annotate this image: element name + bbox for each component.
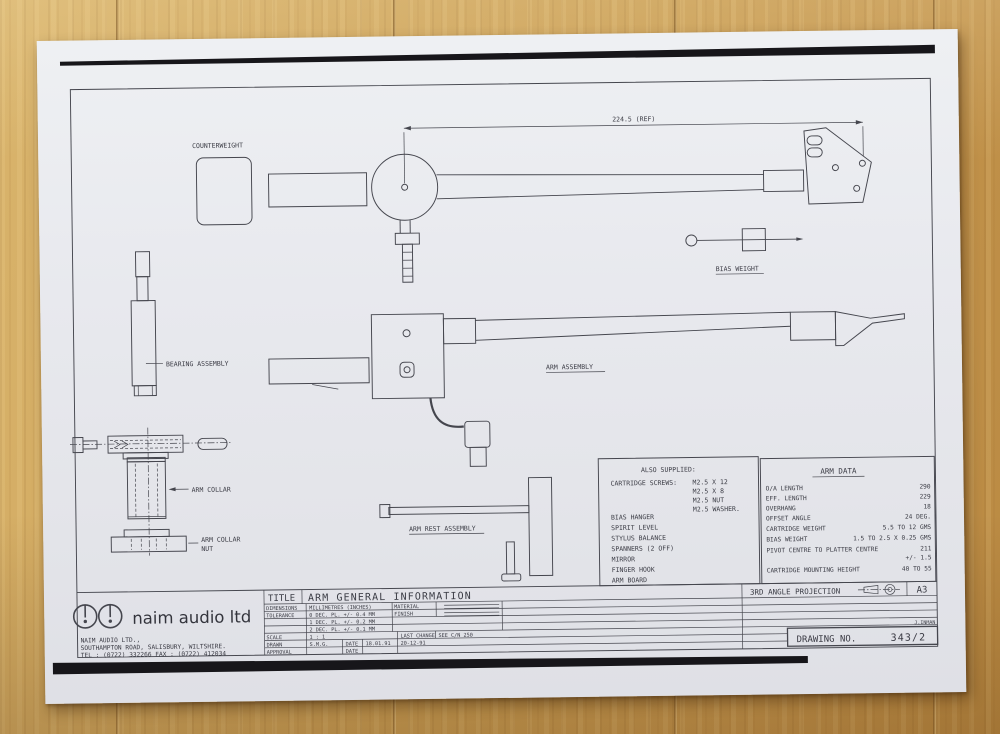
scale-label: SCALE — [266, 635, 282, 641]
arm-data-value: 1.5 TO 2.5 X 0.25 GMS — [853, 534, 932, 542]
last-change-ref: SEE C/N 250 — [438, 633, 472, 639]
engineering-drawing-sheet: 224.5 (REF) COUNTERWEIGHT BIAS WEIGHT — [37, 29, 967, 704]
dimension-label: 224.5 (REF) — [612, 115, 655, 124]
pivot-housing-side — [371, 314, 444, 399]
arm-data-value: 18 — [923, 503, 931, 510]
cartridge-slot — [807, 136, 822, 145]
arm-data-label: OFFSET ANGLE — [766, 515, 811, 523]
drawn-date: 18.01.91 — [366, 641, 391, 647]
third-angle-projection-icon — [858, 584, 900, 595]
arm-data-value: 290 — [919, 483, 931, 490]
arm-rest-assembly-label: ARM REST ASSEMBLY — [409, 524, 476, 533]
arm-data-label: BIAS WEIGHT — [766, 536, 807, 544]
finish-label: FINISH — [394, 611, 413, 617]
bias-weight-detail: BIAS WEIGHT — [686, 228, 804, 275]
dimensions-value: MILLIMETRES (INCHES) — [309, 605, 372, 612]
bearing-assembly-label: BEARING ASSEMBLY — [166, 360, 229, 369]
naim-logo-icon — [74, 604, 122, 628]
din-plug-end — [470, 447, 486, 466]
supplied-item: SPANNERS (2 OFF) — [611, 544, 674, 553]
arm-data-label: O/A LENGTH — [766, 485, 804, 492]
arm-assembly-label: ARM ASSEMBLY — [546, 363, 593, 372]
supplied-item: STYLUS BALANCE — [611, 534, 666, 543]
arm-tube-sleeve — [763, 170, 803, 192]
tolerance-row: 2 DEC. PL. +/- 0.1 MM — [309, 627, 375, 634]
cartridge-screw-item: M2.5 NUT — [693, 496, 724, 504]
company-logo-text: naim audio ltd — [132, 607, 251, 628]
paper-sheet: 224.5 (REF) COUNTERWEIGHT BIAS WEIGHT — [37, 29, 967, 704]
sheet-size: A3 — [916, 585, 927, 595]
photocopy-top-bar — [60, 45, 935, 66]
drawing-number-value: 343/2 — [891, 632, 927, 643]
supplied-item: SPIRIT LEVEL — [611, 523, 658, 532]
arm-data-value-tolerance: +/- 1.5 — [905, 554, 931, 561]
collar-nut — [111, 536, 186, 552]
arm-collar-detail: ARM COLLAR ARM COLLAR NUT — [70, 426, 241, 556]
material-label: MATERIAL — [394, 604, 419, 610]
arm-data-label: EFF. LENGTH — [766, 495, 807, 503]
counterweight-label: COUNTERWEIGHT — [192, 141, 243, 150]
tolerance-row: 1 DEC. PL. +/- 0.2 MM — [309, 619, 375, 626]
scale-value: 1 : 1 — [309, 635, 325, 641]
arm-data-value: 211 — [920, 545, 932, 552]
changed-by: J.INMAN — [914, 620, 935, 626]
supplied-item: BIAS HANGER — [611, 513, 654, 522]
collar-pin — [198, 438, 227, 449]
bearing-assembly-view: BEARING ASSEMBLY — [130, 251, 229, 396]
tonearm-cable — [430, 398, 463, 428]
arm-data-label: PIVOT CENTRE TO PLATTER CENTRE — [766, 546, 878, 554]
arm-data-box: ARM DATA O/A LENGTH 290 EFF. LENGTH 229 … — [760, 456, 936, 583]
cartridge-screws-label: CARTRIDGE SCREWS: — [610, 479, 677, 488]
arm-rest-pillar — [528, 477, 552, 575]
arm-data-value: 24 DEG. — [905, 513, 931, 520]
also-supplied-box: ALSO SUPPLIED: CARTRIDGE SCREWS: M2.5 X … — [598, 457, 760, 586]
arm-collar-label: ARM COLLAR — [192, 486, 231, 495]
cartridge-screw-item: M2.5 WASHER. — [693, 505, 740, 514]
arm-data-label: CARTRIDGE MOUNTING HEIGHT — [767, 566, 860, 574]
projection-label: 3RD ANGLE PROJECTION — [750, 587, 840, 597]
title-label: TITLE — [268, 594, 295, 604]
last-change-label: LAST CHANGE — [400, 633, 434, 639]
arm-collar-nut-label: ARM COLLAR — [201, 535, 240, 544]
arm-data-value: 40 TO 55 — [902, 565, 932, 572]
arm-data-label: CARTRIDGE WEIGHT — [766, 525, 826, 533]
arm-collar-nut-label: NUT — [201, 545, 213, 553]
company-address: TEL : (0722) 332266 FAX : (0722) 412034 — [81, 650, 227, 659]
drawn-label: DRAWN — [267, 642, 283, 648]
supplied-item: FINGER HOOK — [612, 566, 655, 575]
collar-body — [127, 461, 166, 518]
tolerance-row: 0 DEC. PL. +/- 0.4 MM — [309, 612, 375, 619]
supplied-item: MIRROR — [611, 555, 635, 563]
arm-data-title: ARM DATA — [820, 466, 857, 475]
approval-date-label: DATE — [346, 649, 359, 655]
last-change-date: 20-12-91 — [401, 641, 426, 647]
dimensions-label: DIMENSIONS — [266, 606, 297, 612]
date-label: DATE — [346, 641, 359, 647]
headshell-side-shape — [835, 311, 904, 346]
arm-data-value: 229 — [920, 493, 932, 500]
photo-scene: { "photo": { "surface": "wood-table", "w… — [0, 0, 1000, 734]
counterweight-stub-shape — [268, 173, 366, 207]
tolerance-label: TOLERANCE — [266, 613, 294, 619]
cartridge-screw-item: M2.5 X 8 — [693, 487, 724, 495]
arm-rest-assembly-view: ARM REST ASSEMBLY — [379, 477, 552, 582]
collar-screw — [73, 437, 83, 452]
also-supplied-title: ALSO SUPPLIED: — [641, 465, 696, 474]
arm-assembly-side-view: ARM ASSEMBLY — [268, 308, 906, 469]
cartridge-slot — [807, 148, 822, 157]
arm-data-value: 5.5 TO 12 GMS — [883, 524, 932, 532]
bias-weight-label: BIAS WEIGHT — [716, 265, 759, 274]
counterweight-shape — [196, 157, 252, 225]
arm-data-label: OVERHANG — [766, 505, 796, 512]
pivot-centre-hole — [402, 184, 408, 190]
drawn-value: S.M.G. — [310, 642, 329, 648]
arm-rest-rod — [389, 506, 529, 515]
cartridge-screw-item: M2.5 X 12 — [692, 478, 727, 486]
drawing-title: ARM GENERAL INFORMATION — [308, 591, 472, 604]
pivot-pillar-collar — [395, 233, 419, 244]
din-plug-body — [465, 421, 490, 447]
arm-rest-screw — [506, 542, 514, 574]
approval-label: APPROVAL — [267, 650, 292, 656]
arm-top-view: 224.5 (REF) COUNTERWEIGHT — [192, 112, 873, 285]
drawing-number-label: DRAWING NO. — [797, 634, 857, 645]
supplied-item: ARM BOARD — [612, 576, 647, 584]
